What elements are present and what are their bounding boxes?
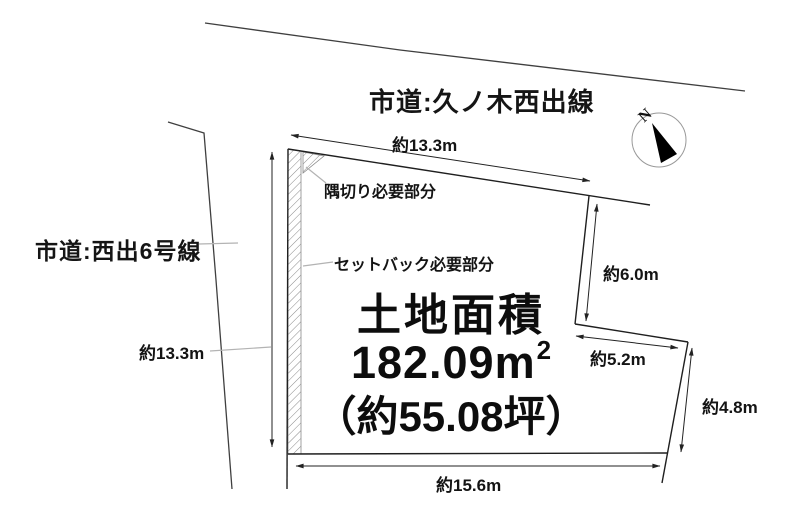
plot-lower-east-edge <box>662 342 688 483</box>
leader-west-dimension <box>210 347 271 351</box>
setback-note: セットバック必要部分 <box>334 251 494 275</box>
plot-south-edge <box>288 453 667 454</box>
west-road-line <box>168 122 232 489</box>
corner-cut-hatch-area <box>303 152 324 173</box>
dim-label-top-frontage: 約13.3m <box>392 131 457 156</box>
dim-label-bottom: 約15.6m <box>436 471 501 496</box>
dim-line-lower-east <box>681 348 692 452</box>
north-road-line <box>205 23 745 91</box>
dim-label-upper-east: 約6.0m <box>603 260 659 285</box>
dim-label-lower-east: 約4.8m <box>702 393 758 418</box>
corner-cut-note: 隅切り必要部分 <box>324 178 436 202</box>
plot-west-edge <box>287 149 288 489</box>
land-area-tsubo: （約55.08坪） <box>290 393 612 440</box>
dim-label-west-side: 約13.3m <box>139 339 204 364</box>
land-plot-diagram: 市道:久ノ木西出線 市道:西出6号線 約13.3m 約13.3m 約6.0m 約… <box>0 0 800 517</box>
leader-setback <box>303 262 333 266</box>
land-area-unit: m <box>495 337 536 388</box>
west-road-label: 市道:西出6号線 <box>35 232 201 266</box>
land-area-title: 土地面積 <box>290 292 612 339</box>
north-road-label: 市道:久ノ木西出線 <box>369 82 595 119</box>
land-area-block: 土地面積 182.09m2 （約55.08坪） <box>290 292 612 440</box>
leader-west-road <box>199 243 238 244</box>
leader-corner-cut <box>306 167 326 183</box>
land-area-value: 182.09 <box>351 337 495 388</box>
land-area-unit-exponent: 2 <box>537 335 552 365</box>
land-area-square-meters: 182.09m2 <box>290 339 612 393</box>
